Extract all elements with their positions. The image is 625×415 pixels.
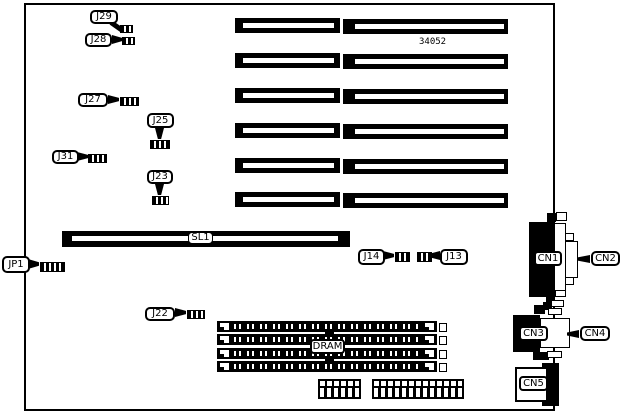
jumper-pins-j23: [152, 196, 169, 205]
simm-ear: [439, 363, 447, 372]
expansion-slot: [235, 158, 340, 173]
callout-label: CN2: [595, 254, 616, 264]
expansion-slot: [235, 88, 340, 103]
callout-jp1: JP1: [2, 256, 30, 273]
label-text: DRAM: [313, 342, 343, 352]
jumper-pins-j27: [120, 97, 139, 106]
part-number: 34052: [419, 37, 446, 47]
slot-stripe: [355, 24, 504, 29]
callout-label: J31: [58, 152, 74, 162]
callout-label: J25: [153, 116, 169, 126]
callout-j13: J13: [440, 249, 468, 265]
callout-j29: J29: [90, 10, 118, 24]
simm-latch: [424, 349, 435, 358]
callout-label: J13: [446, 252, 462, 262]
callout-label: JP1: [8, 260, 23, 270]
slot-stripe: [243, 93, 334, 98]
bracket-tab: [547, 351, 562, 358]
expansion-slot: [235, 53, 340, 68]
expansion-slot: [343, 89, 508, 104]
cn5-label: CN5: [519, 376, 548, 391]
connector-cells: [372, 379, 464, 388]
callout-cn4: CN4: [580, 326, 610, 341]
simm-latch: [219, 362, 230, 371]
slot-stripe: [355, 59, 504, 64]
simm-contacts: [234, 364, 420, 369]
callout-j31: J31: [52, 150, 79, 164]
slot-stripe: [355, 198, 504, 203]
jumper-pins-j31: [88, 154, 107, 163]
label-text: CN1: [538, 254, 559, 264]
slot-stripe: [243, 163, 334, 168]
expansion-slot: [343, 159, 508, 174]
expansion-slot: [343, 54, 508, 69]
callout-label: J14: [364, 252, 380, 262]
bracket-tab: [547, 213, 556, 222]
connector-teeth: [318, 388, 361, 399]
slot-stripe: [355, 94, 504, 99]
simm-socket: [217, 361, 437, 372]
bracket-tab: [551, 300, 564, 307]
callout-j27: J27: [78, 93, 108, 107]
dsub-tab: [565, 233, 574, 241]
callout-j22: J22: [145, 307, 175, 321]
callout-leader: [577, 255, 590, 263]
dsub-tab: [565, 277, 574, 285]
edge-connector: [372, 379, 464, 399]
label-text: CN5: [523, 379, 544, 389]
simm-latch: [424, 362, 435, 371]
simm-ear: [439, 336, 447, 345]
jumper-pins-j28: [122, 37, 135, 45]
callout-j28: J28: [85, 33, 112, 47]
simm-socket: [217, 321, 437, 332]
jumper-pins-j25: [150, 140, 170, 149]
jumper-pins-jp1: [40, 262, 65, 272]
callout-label: J27: [85, 95, 101, 105]
expansion-slot: [235, 192, 340, 207]
expansion-slot: [343, 124, 508, 139]
sl1-label: SL1: [188, 232, 213, 244]
label-text: SL1: [191, 233, 209, 243]
callout-label: CN4: [585, 329, 606, 339]
motherboard-diagram: 34052 J29 J28 J27 J25 J31 J23 JP1 J22 J1…: [0, 0, 625, 415]
callout-cn2: CN2: [591, 251, 620, 266]
simm-contacts: [234, 324, 420, 329]
slot-stripe: [355, 129, 504, 134]
expansion-slot: [343, 19, 508, 34]
slot-stripe: [243, 197, 334, 202]
expansion-slot: [235, 123, 340, 138]
bracket-tab: [556, 212, 567, 221]
simm-latch: [424, 322, 435, 331]
slot-stripe: [243, 23, 334, 28]
simm-latch: [219, 322, 230, 331]
simm-ear: [439, 350, 447, 359]
simm-latch: [219, 349, 230, 358]
jumper-pins-j14: [395, 252, 410, 262]
jumper-pins-j22: [187, 310, 205, 319]
simm-key-tab: [325, 332, 334, 335]
callout-j14: J14: [358, 249, 385, 265]
callout-j23: J23: [147, 170, 173, 184]
dsub-connector-cn2: [565, 241, 578, 278]
bracket-tab: [555, 290, 566, 297]
connector-cells: [318, 379, 361, 388]
connector-teeth: [372, 388, 464, 399]
dram-label: DRAM: [310, 339, 345, 354]
slot-stripe: [243, 58, 334, 63]
cn1-label: CN1: [534, 251, 562, 266]
slot-stripe: [243, 128, 334, 133]
callout-label: J29: [96, 12, 112, 22]
simm-latch: [219, 335, 230, 344]
bracket-tab: [548, 308, 562, 315]
cn3-label: CN3: [519, 326, 548, 341]
expansion-slot: [343, 193, 508, 208]
expansion-slot: [235, 18, 340, 33]
edge-connector: [318, 379, 361, 399]
simm-key-tab: [325, 359, 334, 362]
slot-stripe: [355, 164, 504, 169]
simm-ear: [439, 323, 447, 332]
label-text: CN3: [523, 329, 544, 339]
callout-label: J28: [91, 35, 107, 45]
simm-latch: [424, 335, 435, 344]
callout-label: J23: [152, 172, 168, 182]
callout-j25: J25: [147, 113, 174, 128]
callout-label: J22: [152, 309, 168, 319]
